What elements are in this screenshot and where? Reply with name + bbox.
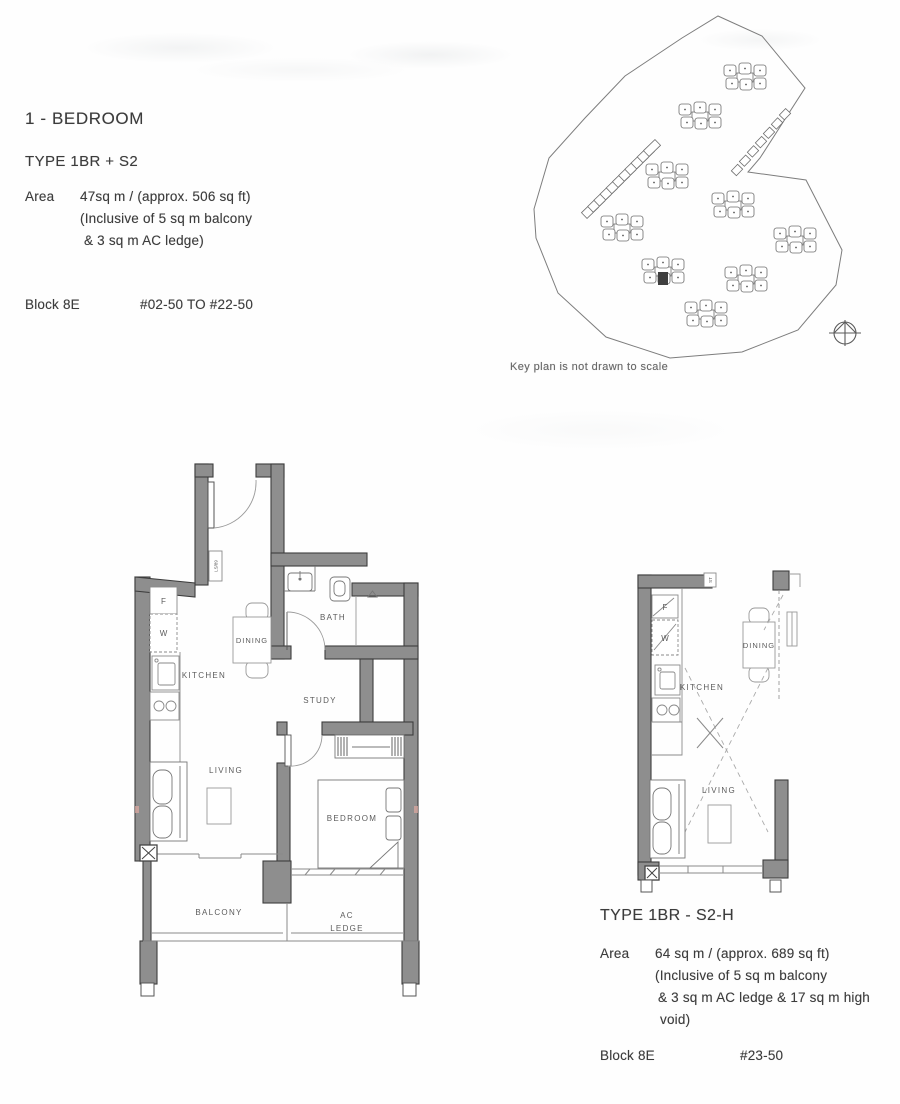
- balcony-elements: [641, 866, 781, 892]
- pillow: [386, 816, 401, 840]
- kitchen-fixtures: [651, 588, 682, 755]
- plan-b-type-label: TYPE 1BR - S2-H: [600, 907, 734, 925]
- room-label-bath: BATH: [320, 613, 346, 622]
- plan-b-area-line4: void): [660, 1012, 690, 1027]
- plan-b-area-label: Area: [600, 946, 629, 961]
- walls: [135, 464, 419, 984]
- scan-mark: [135, 806, 139, 813]
- sofa-cushion: [653, 788, 671, 820]
- room-label-study: STUDY: [303, 696, 337, 705]
- keyplan-upper-right-row: [731, 109, 790, 176]
- room-label-ac-1: AC: [340, 911, 354, 920]
- brochure-page: 1 - BEDROOM TYPE 1BR + S2 Area 47sq m / …: [0, 0, 900, 1104]
- void-edges: [779, 574, 800, 700]
- plan-a-unit-range: #02-50 TO #22-50: [140, 297, 253, 312]
- coffee-table: [708, 805, 731, 843]
- wardrobe: [335, 735, 404, 758]
- room-label-ac-2: LEDGE: [330, 924, 364, 933]
- floor-plan-1br-s2: LS/89 F W KITCHEN DINING: [128, 450, 428, 1005]
- entry-door: [208, 480, 256, 528]
- fridge-label: F: [161, 597, 166, 606]
- bath-fixtures: [284, 566, 377, 650]
- room-label-kitchen: KITCHEN: [680, 683, 724, 692]
- column-foot: [403, 983, 416, 996]
- plan-a-area-line3: & 3 sq m AC ledge): [84, 233, 204, 248]
- room-label-dining: DINING: [236, 636, 268, 645]
- column-foot: [770, 880, 781, 892]
- keyplan-building-clusters: [601, 63, 816, 327]
- plan-b-unit-range: #23-50: [740, 1048, 783, 1063]
- sofa-cushion: [153, 806, 172, 838]
- page-title: 1 - BEDROOM: [25, 109, 144, 129]
- room-label-balcony: BALCONY: [195, 908, 242, 917]
- plan-b-area-line2: (Inclusive of 5 sq m balcony: [655, 968, 827, 983]
- room-label-dining: DINING: [743, 641, 775, 650]
- sofa-cushion: [153, 770, 172, 804]
- floor-plan-1br-s2h: ST F W KITCHEN DINING: [628, 558, 808, 903]
- key-plan: [515, 5, 895, 380]
- room-label-living: LIVING: [702, 786, 736, 795]
- plan-a-area-label: Area: [25, 189, 54, 204]
- plan-b-area-line3: & 3 sq m AC ledge & 17 sq m high: [658, 990, 870, 1005]
- keyplan-caption: Key plan is not drawn to scale: [510, 361, 668, 373]
- bedroom-furniture: [285, 735, 404, 868]
- void-x-mark: [697, 718, 723, 748]
- dining-chair: [246, 661, 268, 678]
- kitchen-fixtures: [150, 587, 180, 763]
- plan-a-area-line1: 47sq m / (approx. 506 sq ft): [80, 189, 251, 204]
- bedroom-door-leaf: [285, 735, 291, 766]
- wall-tag: LS/89: [209, 551, 222, 581]
- plan-b-area-line1: 64 sq m / (approx. 689 sq ft): [655, 946, 830, 961]
- plan-a-area-line2: (Inclusive of 5 sq m balcony: [80, 211, 252, 226]
- room-label-kitchen: KITCHEN: [182, 671, 226, 680]
- plan-a-block-label: Block 8E: [25, 297, 80, 312]
- sofa-cushion: [653, 822, 671, 854]
- scan-mark: [414, 806, 418, 813]
- north-compass-icon: [829, 320, 861, 346]
- wall-tag: ST: [704, 573, 716, 587]
- room-label-living: LIVING: [209, 766, 243, 775]
- washer-label: W: [160, 629, 168, 638]
- plan-b-block-label: Block 8E: [600, 1048, 655, 1063]
- wall-tag-label: ST: [708, 577, 713, 583]
- fridge-label: F: [663, 603, 668, 612]
- keyplan-highlighted-unit: [658, 272, 668, 285]
- pillow: [386, 788, 401, 812]
- wall-tag-label: LS/89: [214, 560, 219, 572]
- column-foot: [141, 983, 154, 996]
- washer-label: W: [661, 634, 669, 643]
- coffee-table: [207, 788, 231, 824]
- bedroom-door-arc: [288, 735, 322, 766]
- room-label-bedroom: BEDROOM: [327, 814, 377, 823]
- plan-a-type-label: TYPE 1BR + S2: [25, 153, 138, 170]
- column-foot: [641, 880, 652, 892]
